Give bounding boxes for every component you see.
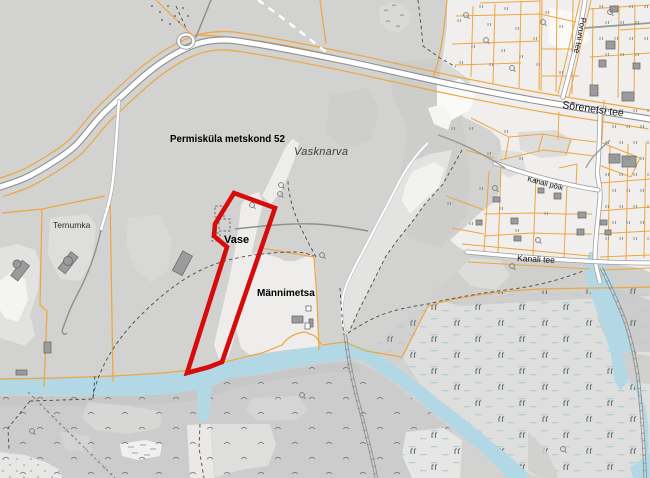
svg-text:Kanali tee: Kanali tee [517, 253, 556, 265]
svg-text:Permisküla metskond 52: Permisküla metskond 52 [170, 134, 285, 145]
svg-text:Vase: Vase [224, 234, 249, 246]
svg-text:Ternumka: Ternumka [53, 220, 91, 230]
svg-text:Männimetsa: Männimetsa [257, 288, 315, 299]
svg-text:Vasknarva: Vasknarva [294, 146, 348, 158]
